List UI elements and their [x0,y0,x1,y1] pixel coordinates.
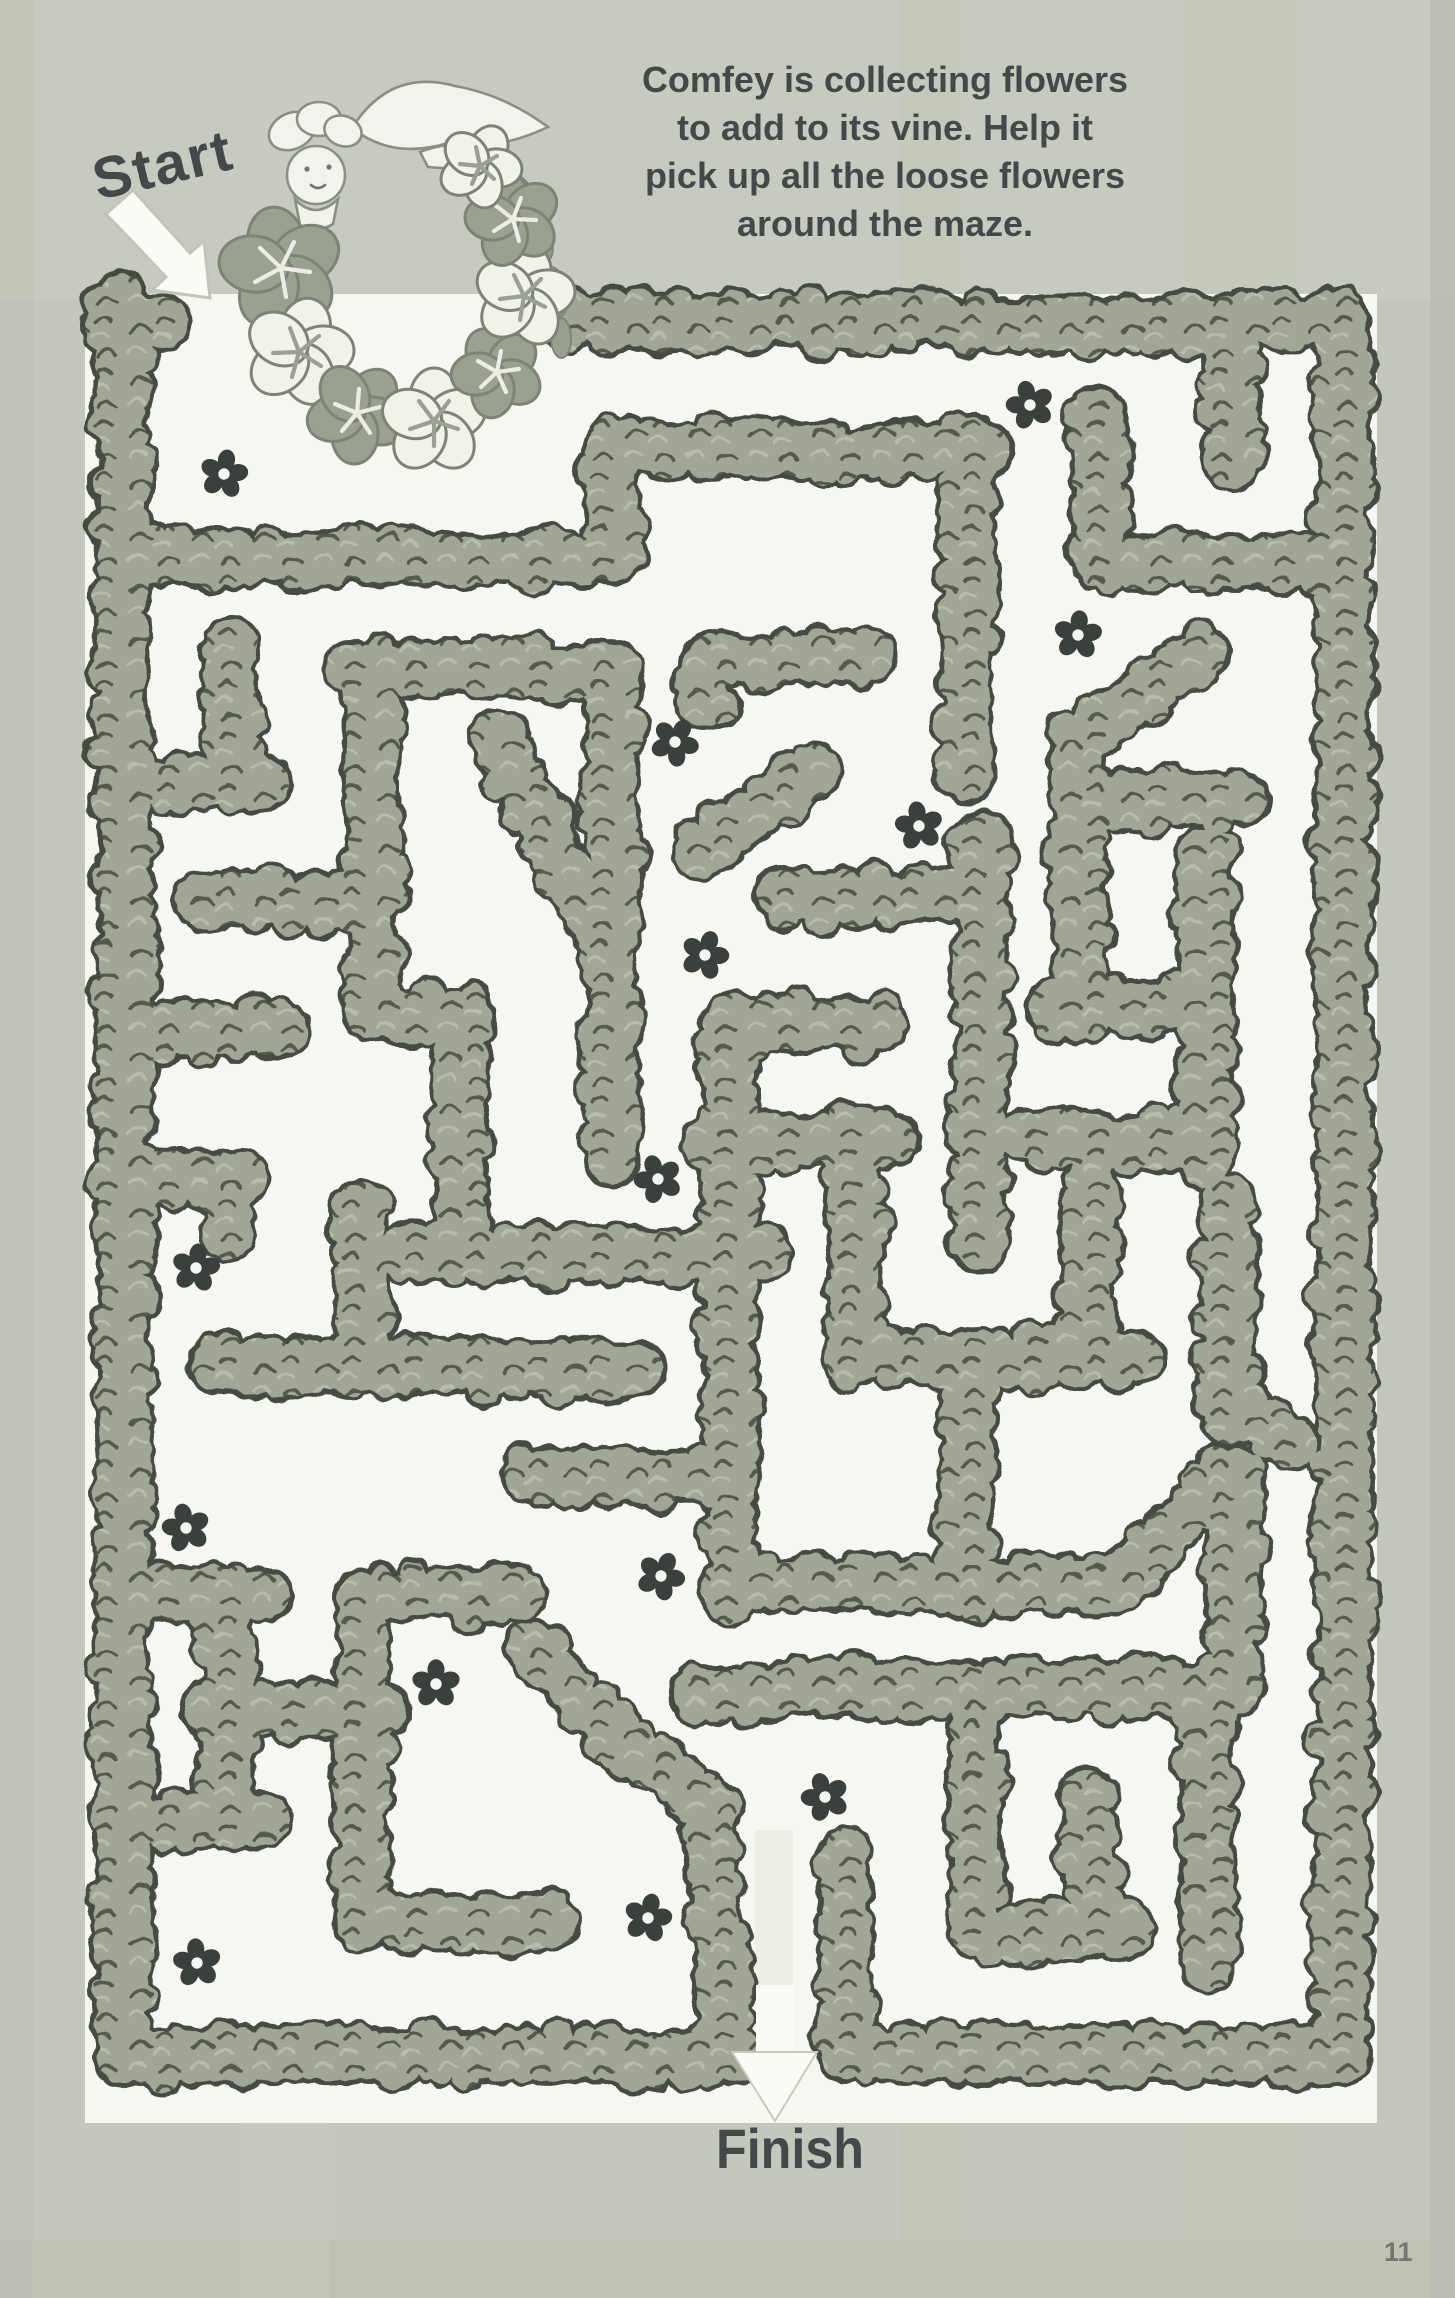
svg-text:11: 11 [1384,2237,1413,2267]
svg-text:to add to its vine. Help it: to add to its vine. Help it [677,107,1093,148]
svg-text:Comfey is collecting flowers: Comfey is collecting flowers [642,59,1128,100]
svg-text:around the maze.: around the maze. [737,203,1033,244]
svg-text:pick up all the loose flowers: pick up all the loose flowers [645,155,1125,196]
svg-text:Finish: Finish [716,2117,864,2180]
